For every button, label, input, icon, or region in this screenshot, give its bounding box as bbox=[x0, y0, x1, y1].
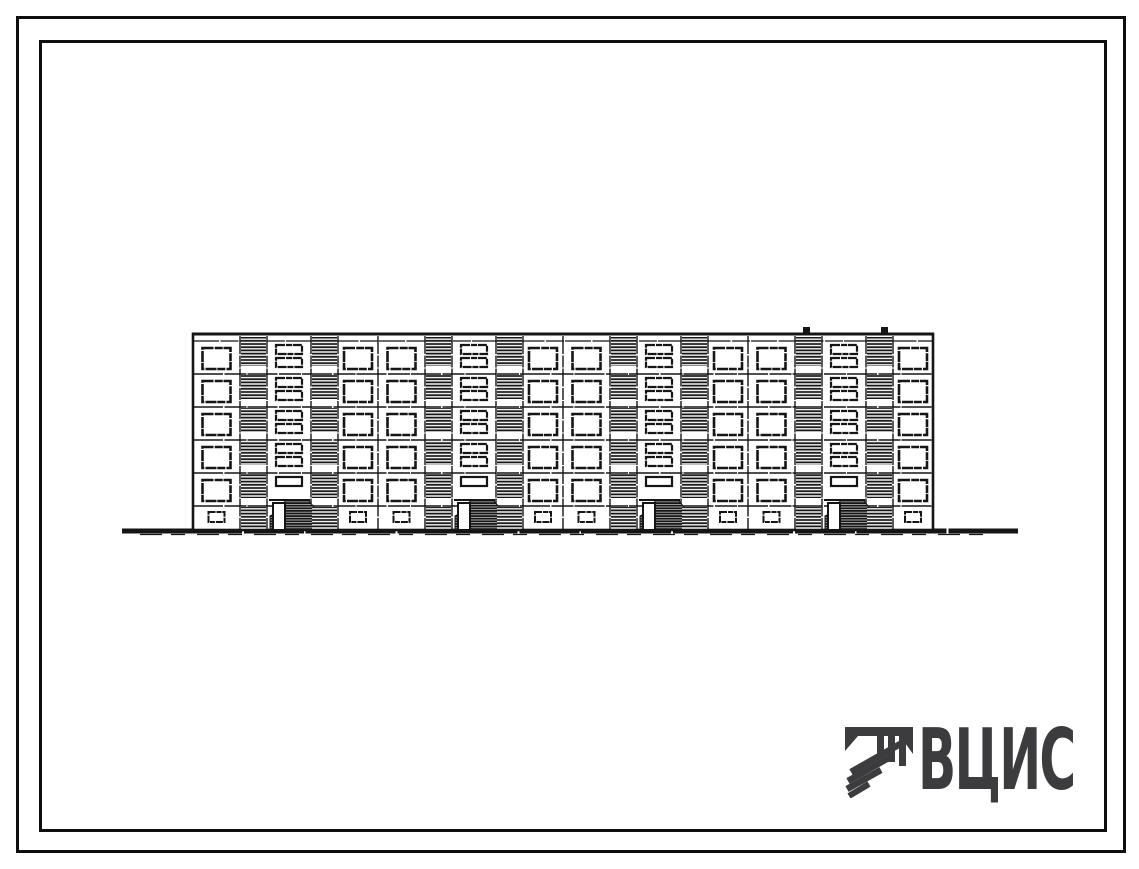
ground-line bbox=[122, 531, 1018, 535]
entrance-door bbox=[273, 503, 285, 530]
vcis-logo-text: ВЦИС bbox=[918, 718, 1074, 803]
entrance-door bbox=[458, 503, 470, 530]
entrance-door bbox=[828, 503, 840, 530]
document-page: ВЦИС bbox=[0, 0, 1139, 869]
vcis-logo: ВЦИС bbox=[845, 722, 1139, 803]
entrance-door bbox=[643, 503, 655, 530]
vcis-emblem-icon bbox=[845, 726, 913, 798]
building-elevation bbox=[192, 327, 934, 530]
